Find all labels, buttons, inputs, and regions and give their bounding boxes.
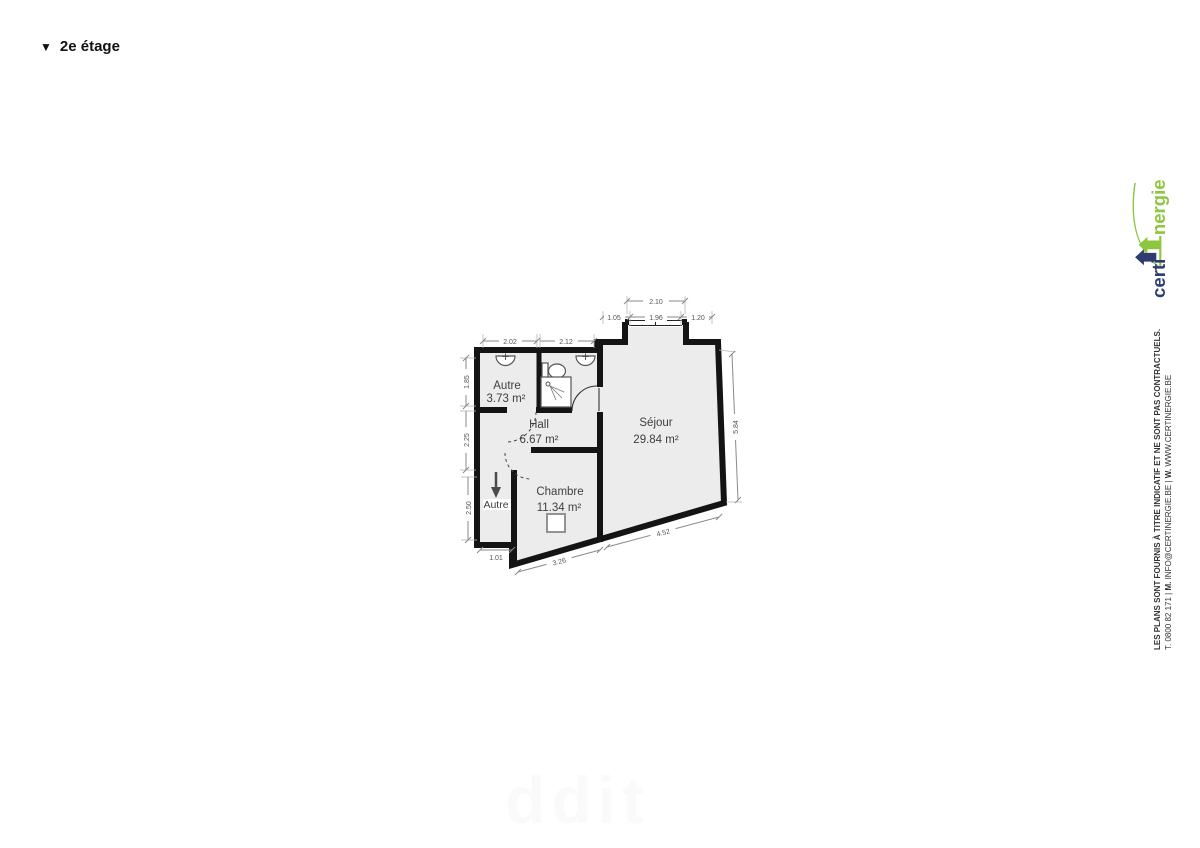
floor-plan: Autre Autre 3.73 m² Hall 6.67 m² Séjour … (0, 0, 1200, 848)
dimension-top-overall: 2.10 (624, 295, 688, 314)
legal-sidebar: LES PLANS SONT FOURNIS À TITRE INDICATIF… (1152, 338, 1176, 650)
shower-icon (541, 377, 571, 407)
room-label-stairs: Autre (483, 499, 508, 511)
svg-text:Autre: Autre (493, 380, 521, 392)
room-label-autre: Autre 3.73 m² (487, 380, 526, 405)
legal-disclaimer: LES PLANS SONT FOURNIS À TITRE INDICATIF… (1152, 338, 1163, 650)
contact-web: WWW.CERTINERGIE.BE (1164, 375, 1173, 469)
svg-text:Chambre: Chambre (536, 486, 583, 498)
svg-text:2.50: 2.50 (466, 501, 473, 515)
dimension-leftwing-top: 2.02 2.12 (480, 334, 597, 348)
svg-text:2.02: 2.02 (503, 339, 517, 346)
certinergie-logo-graphic: certi nergie (1128, 180, 1174, 300)
contact-mail-label: M. (1164, 582, 1173, 591)
logo-text-nergie: nergie (1148, 180, 1169, 235)
floorplan-page: { "title": { "marker": "▼", "text": "2e … (0, 0, 1200, 848)
svg-text:1.96: 1.96 (649, 315, 663, 322)
svg-text:2.10: 2.10 (649, 299, 663, 306)
svg-text:2.25: 2.25 (464, 433, 471, 447)
legal-contact: T. 0800 82 171 | M. INFO@CERTINERGIE.BE … (1163, 338, 1174, 650)
svg-text:11.34 m²: 11.34 m² (537, 502, 582, 514)
contact-web-label: W. (1164, 469, 1173, 478)
svg-text:1.01: 1.01 (489, 555, 503, 562)
svg-text:3.73 m²: 3.73 m² (487, 393, 526, 405)
contact-mail: INFO@CERTINERGIE.BE | (1164, 478, 1173, 581)
svg-text:5.84: 5.84 (733, 420, 740, 434)
svg-text:1.85: 1.85 (464, 375, 471, 389)
svg-text:1.05: 1.05 (607, 315, 621, 322)
svg-text:1.20: 1.20 (691, 315, 705, 322)
svg-text:Séjour: Séjour (639, 417, 672, 429)
svg-text:Hall: Hall (529, 419, 549, 431)
svg-text:29.84 m²: 29.84 m² (633, 434, 679, 446)
svg-text:2.12: 2.12 (559, 339, 573, 346)
watermark: ddit (505, 762, 650, 838)
svg-text:6.67 m²: 6.67 m² (520, 434, 559, 446)
contact-phone: T. 0800 82 171 | (1164, 591, 1173, 650)
logo-text-certi: certi (1148, 259, 1169, 298)
skylight-square (547, 514, 565, 532)
certinergie-logo: certi nergie (1128, 180, 1174, 300)
